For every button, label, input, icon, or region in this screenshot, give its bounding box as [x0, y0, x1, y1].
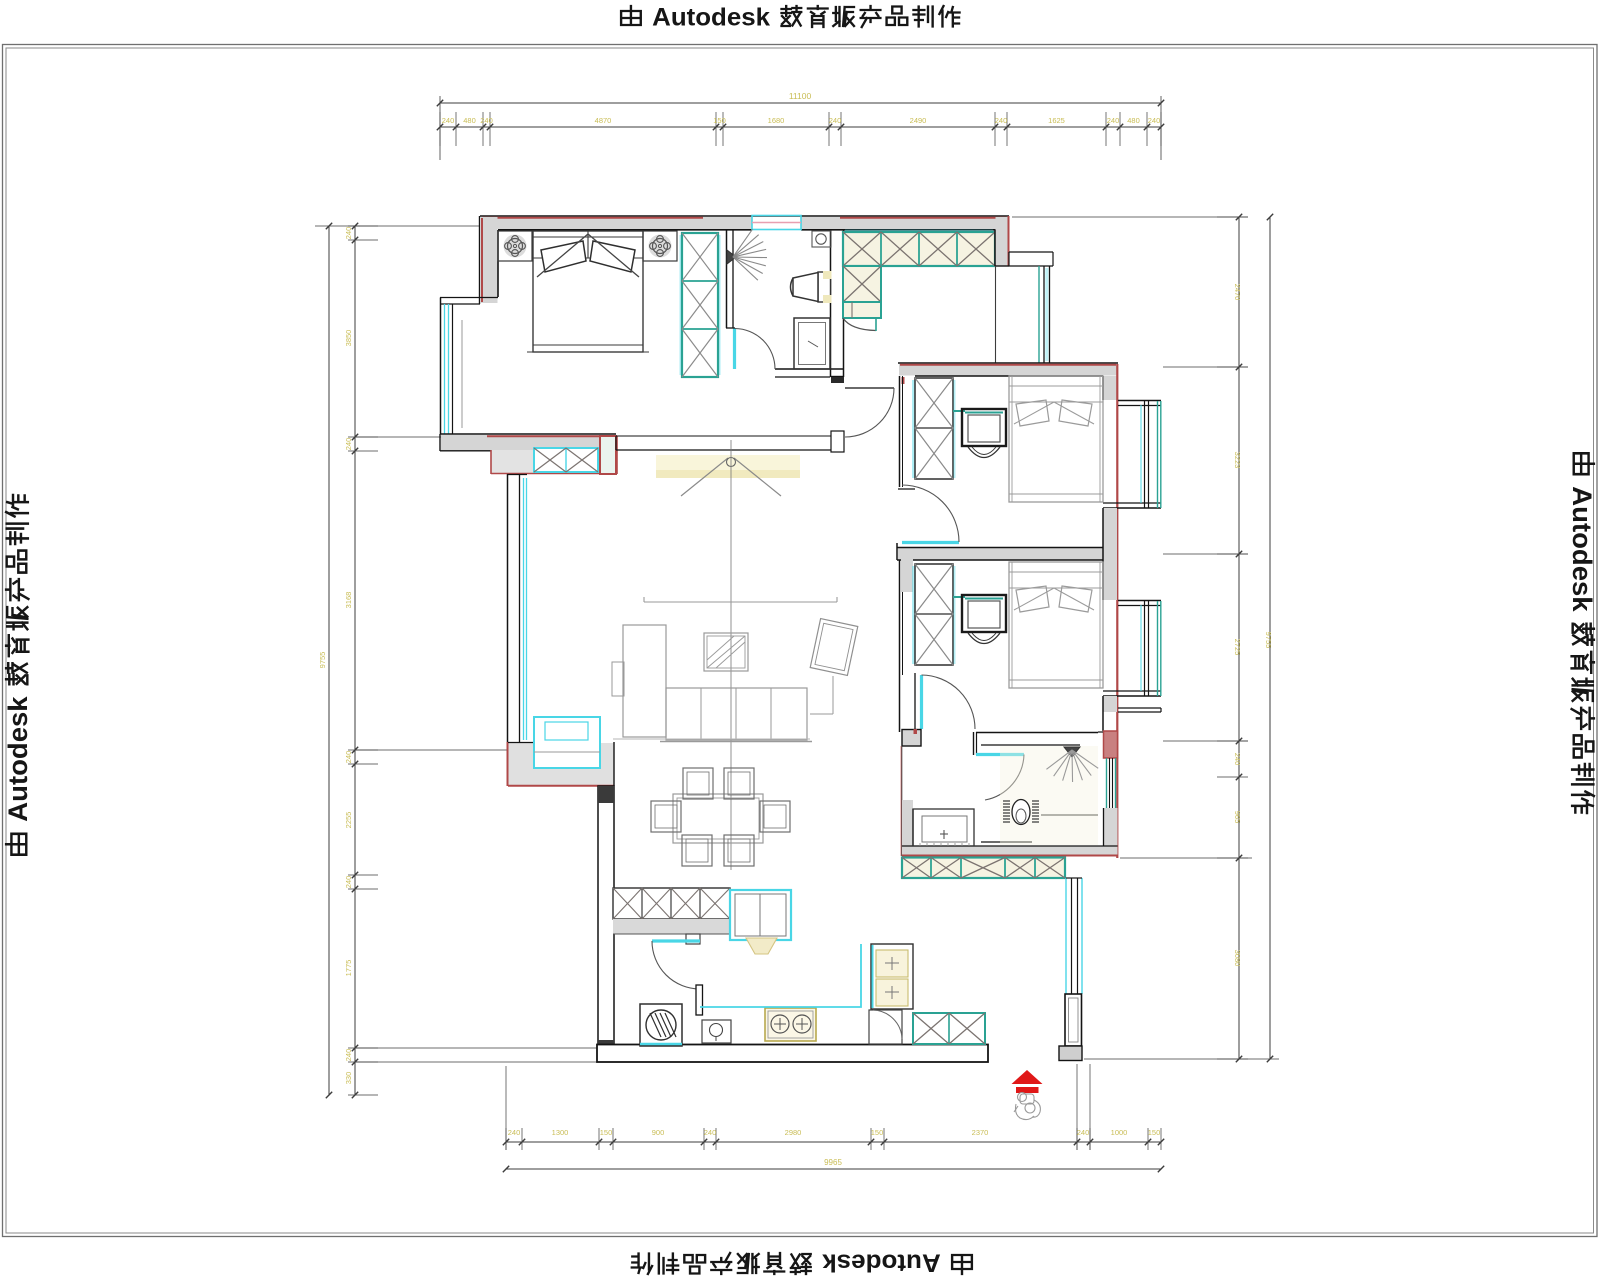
svg-text:2980: 2980	[785, 1128, 802, 1137]
svg-text:240: 240	[508, 1128, 521, 1137]
svg-text:Autodesk: Autodesk	[1567, 486, 1596, 612]
svg-text:240: 240	[344, 227, 353, 240]
svg-text:1680: 1680	[768, 116, 785, 125]
svg-text:11100: 11100	[789, 91, 812, 101]
svg-text:3080: 3080	[1233, 950, 1242, 967]
svg-text:9755: 9755	[318, 652, 327, 669]
svg-text:240: 240	[704, 1128, 717, 1137]
svg-text:1000: 1000	[1111, 1128, 1128, 1137]
svg-text:240: 240	[1233, 753, 1242, 766]
svg-text:240: 240	[344, 438, 353, 451]
svg-text:9965: 9965	[824, 1158, 842, 1167]
svg-text:4870: 4870	[595, 116, 612, 125]
svg-text:240: 240	[1077, 1128, 1090, 1137]
svg-text:240: 240	[344, 876, 353, 889]
svg-text:3223: 3223	[1233, 452, 1242, 469]
svg-text:2470: 2470	[1233, 284, 1242, 301]
svg-text:150: 150	[600, 1128, 613, 1137]
svg-text:240: 240	[344, 751, 353, 764]
svg-text:150: 150	[713, 116, 726, 125]
svg-text:2725: 2725	[1233, 639, 1242, 656]
svg-text:Autodesk: Autodesk	[3, 695, 32, 821]
svg-text:1775: 1775	[344, 960, 353, 977]
svg-text:240: 240	[1148, 116, 1161, 125]
svg-text:480: 480	[463, 116, 476, 125]
svg-text:150: 150	[871, 1128, 884, 1137]
svg-text:240: 240	[1107, 116, 1120, 125]
svg-text:1625: 1625	[1048, 116, 1065, 125]
svg-text:900: 900	[652, 1128, 665, 1137]
svg-text:240: 240	[829, 116, 842, 125]
svg-text:150: 150	[1148, 1128, 1161, 1137]
svg-text:240: 240	[442, 116, 455, 125]
svg-text:9755: 9755	[1264, 632, 1273, 649]
svg-text:1300: 1300	[552, 1128, 569, 1137]
svg-text:2370: 2370	[972, 1128, 989, 1137]
svg-text:2490: 2490	[910, 116, 927, 125]
svg-text:Autodesk: Autodesk	[821, 1249, 940, 1276]
svg-text:2255: 2255	[344, 812, 353, 829]
svg-text:965: 965	[1233, 811, 1242, 824]
svg-text:480: 480	[1127, 116, 1140, 125]
svg-text:240: 240	[344, 1049, 353, 1062]
svg-text:330: 330	[344, 1072, 353, 1085]
svg-text:3168: 3168	[344, 592, 353, 609]
svg-text:240: 240	[995, 116, 1008, 125]
svg-text:3850: 3850	[344, 330, 353, 347]
svg-text:240: 240	[480, 116, 493, 125]
svg-text:Autodesk: Autodesk	[652, 4, 771, 32]
